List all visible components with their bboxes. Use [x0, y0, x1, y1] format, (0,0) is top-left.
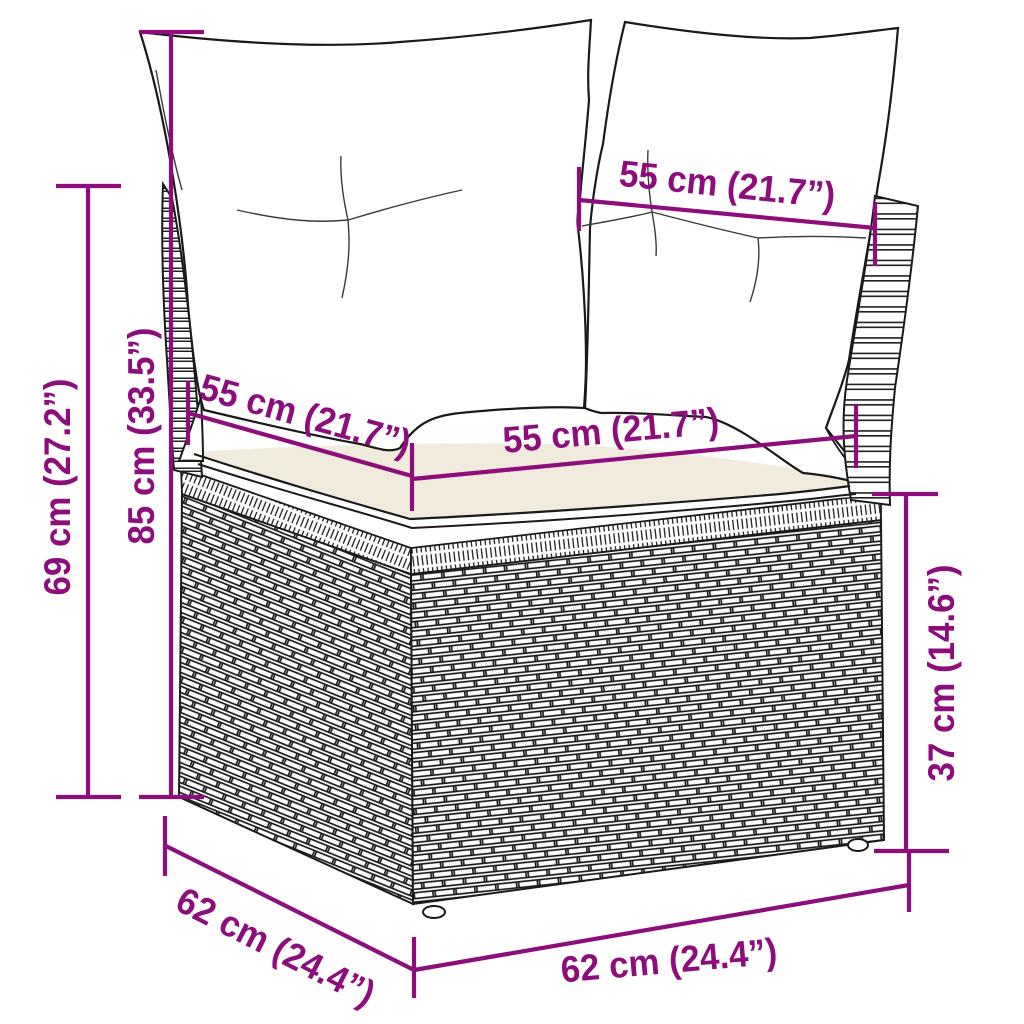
svg-text:69 cm (27.2”): 69 cm (27.2”)	[37, 379, 78, 596]
svg-text:37 cm (14.6”): 37 cm (14.6”)	[921, 565, 962, 782]
svg-text:85 cm (33.5”): 85 cm (33.5”)	[121, 328, 162, 545]
